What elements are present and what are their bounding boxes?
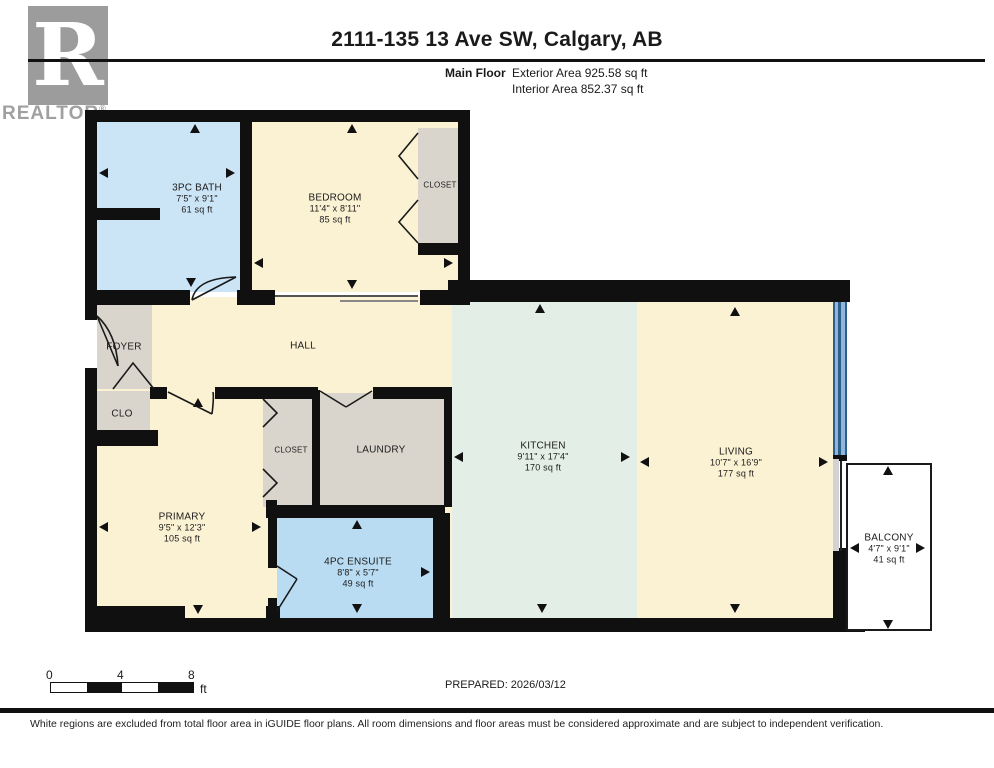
room-area: 61 sq ft	[172, 205, 222, 216]
dim-arrow-up	[193, 398, 203, 407]
dim-arrow-down	[730, 604, 740, 613]
wall-segment	[95, 606, 185, 618]
room-name: 4PC ENSUITE	[324, 557, 392, 568]
room-label-primary: PRIMARY 9'5" x 12'3" 105 sq ft	[159, 512, 206, 545]
room-label-bedroom-closet: CLOSET	[423, 180, 456, 191]
room-name: CLOSET	[423, 180, 456, 191]
footer-divider	[0, 708, 994, 713]
room-label-ensuite: 4PC ENSUITE 8'8" x 5'7" 49 sq ft	[324, 557, 392, 590]
room-area: 41 sq ft	[864, 555, 913, 566]
room-label-clo: CLO	[111, 409, 132, 420]
room-area: 170 sq ft	[517, 463, 568, 474]
title-divider	[28, 59, 985, 62]
dim-arrow-up	[347, 124, 357, 133]
dim-arrow-right	[226, 168, 235, 178]
dim-arrow-right	[252, 522, 261, 532]
dim-arrow-right	[444, 258, 453, 268]
wall-segment	[150, 387, 167, 399]
room-label-bath: 3PC BATH 7'5" x 9'1" 61 sq ft	[172, 183, 222, 216]
room-name: FOYER	[106, 342, 141, 353]
dim-arrow-left	[850, 543, 859, 553]
room-label-kitchen: KITCHEN 9'11" x 17'4" 170 sq ft	[517, 441, 568, 474]
wall-segment	[85, 430, 158, 446]
wall-segment	[240, 122, 252, 292]
dim-arrow-left	[640, 457, 649, 467]
wall-segment	[444, 387, 452, 507]
interior-area-text: Interior Area 852.37 sq ft	[512, 82, 643, 96]
wall-segment	[448, 280, 850, 302]
wall-segment	[268, 505, 445, 518]
scale-tick-8: 8	[188, 668, 195, 682]
room-dims: 10'7" x 16'9"	[710, 458, 762, 469]
room-area: 105 sq ft	[159, 534, 206, 545]
room-name: LIVING	[710, 447, 762, 458]
scale-segment	[87, 683, 123, 692]
floorplan-page: R REALTOR® 2111-135 13 Ave SW, Calgary, …	[0, 0, 994, 768]
scale-bar	[50, 682, 194, 693]
balcony-slider-track	[833, 459, 839, 551]
wall-segment	[85, 208, 160, 220]
wall-segment	[266, 387, 277, 399]
wall-segment	[237, 290, 275, 305]
dim-arrow-down	[883, 620, 893, 629]
balcony-slider-door	[840, 461, 842, 551]
prepared-date: PREPARED: 2026/03/12	[445, 679, 566, 691]
room-dims: 9'11" x 17'4"	[517, 452, 568, 463]
dim-arrow-right	[819, 457, 828, 467]
realtor-logo: R	[28, 6, 108, 105]
wall-segment	[85, 368, 97, 620]
wall-segment	[312, 390, 320, 508]
scale-segment	[51, 683, 87, 692]
room-name: LAUNDRY	[356, 445, 405, 456]
scale-segment	[158, 683, 194, 692]
wall-segment	[268, 518, 277, 568]
wall-segment	[458, 110, 470, 305]
dim-arrow-right	[621, 452, 630, 462]
room-label-foyer: FOYER	[106, 342, 141, 353]
wall-segment	[85, 110, 470, 122]
wall-segment	[85, 290, 190, 305]
room-name: 3PC BATH	[172, 183, 222, 194]
room-area: 85 sq ft	[308, 215, 361, 226]
wall-segment	[433, 513, 450, 618]
room-dims: 4'7" x 9'1"	[864, 544, 913, 555]
dim-arrow-up	[352, 520, 362, 529]
dim-arrow-down	[352, 604, 362, 613]
room-area: 177 sq ft	[710, 469, 762, 480]
exterior-area-text: Exterior Area 925.58 sq ft	[512, 66, 647, 80]
room-name: CLO	[111, 409, 132, 420]
scale-unit: ft	[200, 682, 207, 696]
dim-arrow-left	[254, 258, 263, 268]
room-name: HALL	[290, 341, 316, 352]
dim-arrow-down	[193, 605, 203, 614]
room-label-closet: CLOSET	[274, 445, 307, 456]
room-label-laundry: LAUNDRY	[356, 445, 405, 456]
room-label-living: LIVING 10'7" x 16'9" 177 sq ft	[710, 447, 762, 480]
room-dims: 7'5" x 9'1"	[172, 194, 222, 205]
room-name: PRIMARY	[159, 512, 206, 523]
dim-arrow-up	[883, 466, 893, 475]
disclaimer-text: White regions are excluded from total fl…	[30, 718, 980, 730]
realtor-r-icon: R	[32, 13, 103, 99]
wall-segment	[418, 243, 470, 255]
dim-arrow-down	[537, 604, 547, 613]
dim-arrow-up	[730, 307, 740, 316]
room-name: BEDROOM	[308, 193, 361, 204]
room-label-hall: HALL	[290, 341, 316, 352]
page-title: 2111-135 13 Ave SW, Calgary, AB	[0, 28, 994, 52]
room-name: BALCONY	[864, 533, 913, 544]
room-name: CLOSET	[274, 445, 307, 456]
dim-arrow-down	[347, 280, 357, 289]
room-label-balcony: BALCONY 4'7" x 9'1" 41 sq ft	[864, 533, 913, 566]
wall-segment	[373, 387, 450, 399]
room-dims: 11'4" x 8'11"	[308, 204, 361, 215]
scale-tick-4: 4	[117, 668, 124, 682]
scale-tick-0: 0	[46, 668, 53, 682]
dim-arrow-left	[99, 168, 108, 178]
room-name: KITCHEN	[517, 441, 568, 452]
room-area: 49 sq ft	[324, 579, 392, 590]
dim-arrow-right	[916, 543, 925, 553]
room-label-bedroom: BEDROOM 11'4" x 8'11" 85 sq ft	[308, 193, 361, 226]
wall-segment	[85, 618, 865, 632]
dim-arrow-left	[99, 522, 108, 532]
room-dims: 8'8" x 5'7"	[324, 568, 392, 579]
wall-segment	[833, 548, 847, 632]
floor-label: Main Floor	[445, 66, 506, 80]
dim-arrow-up	[190, 124, 200, 133]
room-dims: 9'5" x 12'3"	[159, 523, 206, 534]
dim-arrow-up	[535, 304, 545, 313]
dim-arrow-down	[186, 278, 196, 287]
dim-arrow-right	[421, 567, 430, 577]
scale-segment	[122, 683, 158, 692]
window-strip	[833, 302, 847, 457]
dim-arrow-left	[454, 452, 463, 462]
